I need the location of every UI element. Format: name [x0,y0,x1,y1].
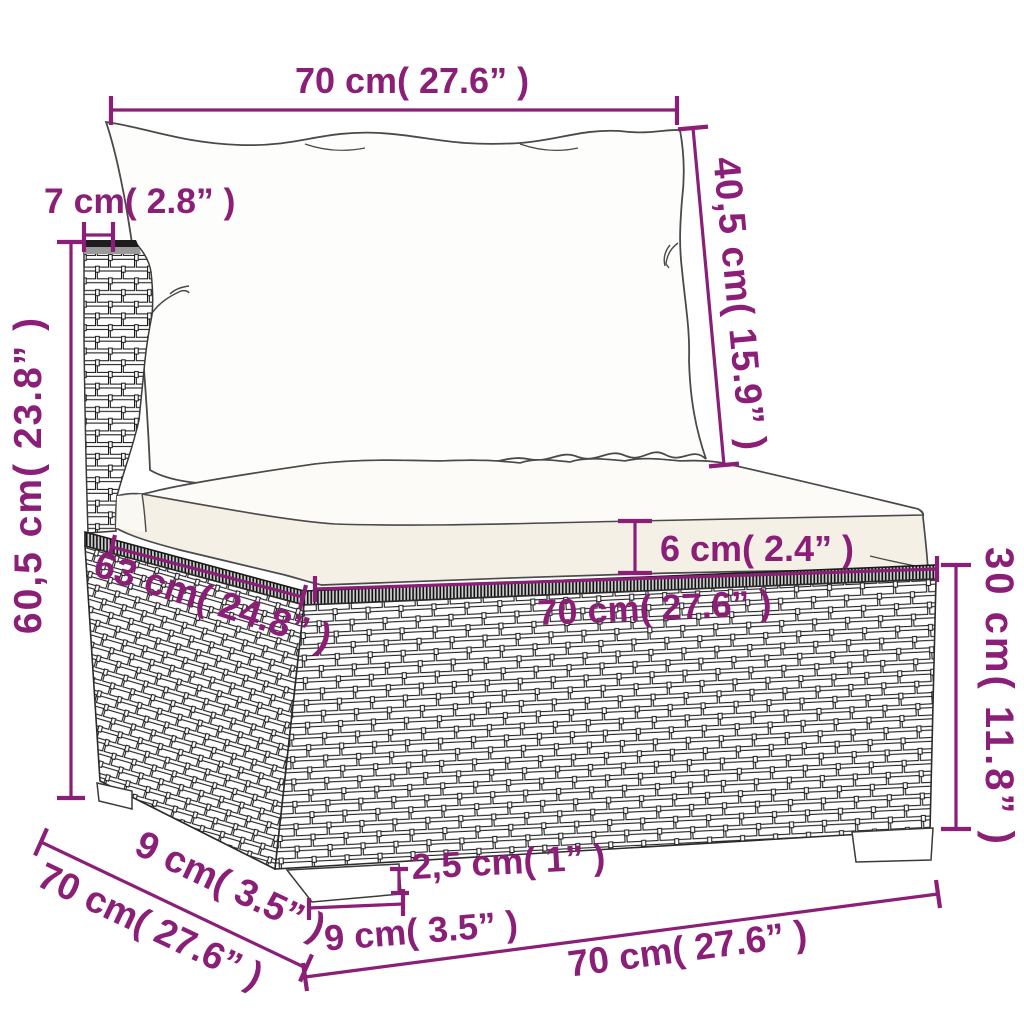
svg-text:7 cm( 2.8” ): 7 cm( 2.8” ) [44,181,235,221]
svg-text:9 cm( 3.5” ): 9 cm( 3.5” ) [323,902,520,958]
svg-text:60,5 cm( 23.8” ): 60,5 cm( 23.8” ) [7,316,50,634]
svg-text:30 cm( 11.8” ): 30 cm( 11.8” ) [977,547,1021,847]
svg-text:6 cm( 2.4” ): 6 cm( 2.4” ) [660,528,854,569]
svg-text:2,5 cm( 1” ): 2,5 cm( 1” ) [410,836,606,887]
svg-text:40,5 cm( 15.9” ): 40,5 cm( 15.9” ) [704,155,773,452]
svg-text:70 cm( 27.6” ): 70 cm( 27.6” ) [565,913,809,985]
svg-text:70 cm( 27.6” ): 70 cm( 27.6” ) [295,60,529,101]
